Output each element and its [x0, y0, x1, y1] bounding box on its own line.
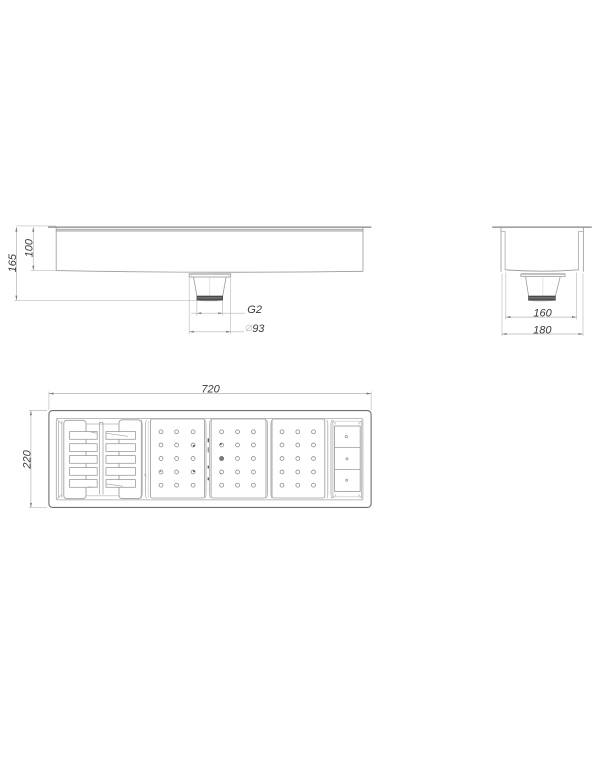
- svg-text:100: 100: [24, 238, 36, 257]
- svg-text:180: 180: [533, 325, 552, 337]
- svg-text:165: 165: [7, 253, 19, 272]
- svg-text:720: 720: [201, 384, 220, 396]
- svg-text:93: 93: [252, 323, 265, 335]
- svg-text:G2: G2: [247, 304, 262, 316]
- svg-text:220: 220: [22, 449, 34, 469]
- svg-text:160: 160: [533, 307, 552, 319]
